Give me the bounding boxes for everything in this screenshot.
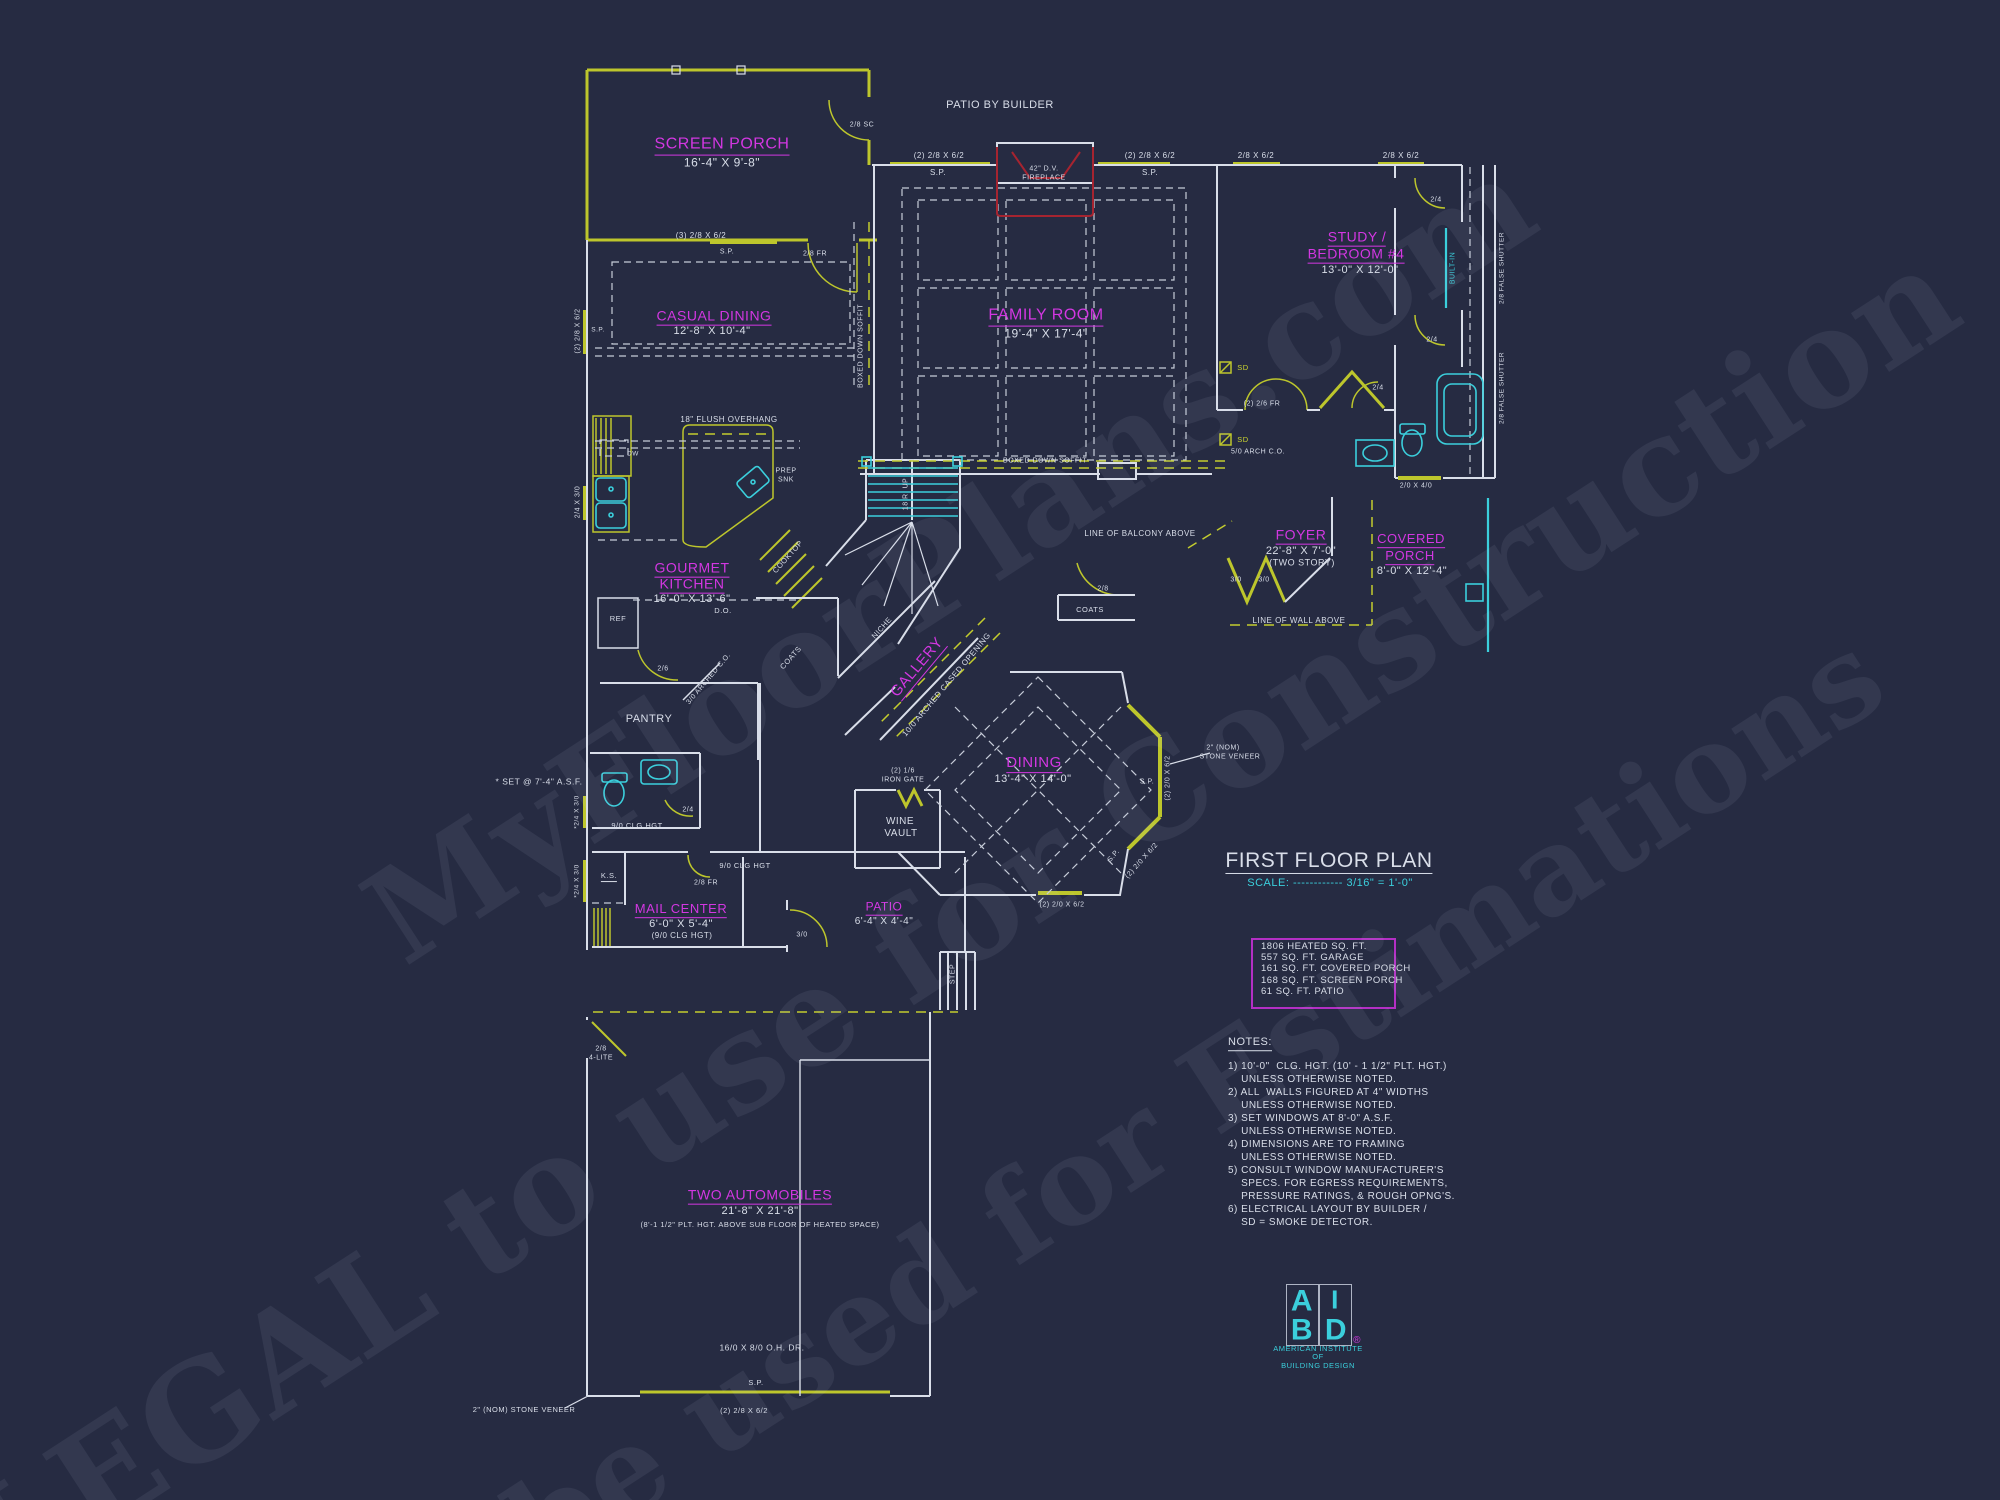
notes-line-1: 1) 10'-0" CLG. HGT. (10' - 1 1/2" PLT. H… <box>1228 1062 1447 1073</box>
label-wine-vault-2: VAULT <box>884 829 917 840</box>
floor-plan-canvas: SCREEN PORCH16'-4" X 9'-8"CASUAL DINING1… <box>0 0 2000 1500</box>
label-mail-center: MAIL CENTER <box>635 902 727 918</box>
logo-letter-i: I <box>1331 1286 1339 1313</box>
notes-line-7: 4) DIMENSIONS ARE TO FRAMING <box>1228 1140 1405 1151</box>
note-soffit-vertical: BOXED DOWN SOFFIT <box>857 304 864 388</box>
notes-line-13: SD = SMOKE DETECTOR. <box>1228 1218 1373 1229</box>
label-screen-porch: SCREEN PORCH <box>655 137 790 156</box>
area-summary-line-4: 168 SQ. FT. SCREEN PORCH <box>1261 976 1403 986</box>
label-refrigerator: REF <box>610 615 627 623</box>
dims-screen-porch: 16'-4" X 9'-8" <box>684 157 760 170</box>
label-foyer: FOYER <box>1276 528 1327 545</box>
door-screen-porch: 2/8 SC <box>850 121 874 128</box>
label-prep-sink-1: PREP <box>775 467 796 474</box>
notes-line-4: UNLESS OTHERWISE NOTED. <box>1228 1101 1396 1112</box>
label-garage: TWO AUTOMOBILES <box>688 1188 832 1205</box>
window-casual-dining: (3) 2/8 X 6/2 <box>676 232 727 240</box>
logo-letter-b: B <box>1291 1314 1313 1346</box>
window-study-left: 2/8 X 6/2 <box>1238 152 1275 160</box>
logo-caption-2: OF <box>1312 1353 1323 1361</box>
note-false-shutter-2: 2/8 FALSE SHUTTER <box>1500 352 1507 424</box>
dims-garage: 21'-8" X 21'-8" <box>722 1206 799 1218</box>
label-wine-vault-1: WINE <box>886 817 914 828</box>
notes-line-12: 6) ELECTRICAL LAYOUT BY BUILDER / <box>1228 1205 1427 1216</box>
notes-heading: NOTES: <box>1228 1037 1272 1051</box>
note-patio-by-builder: PATIO BY BUILDER <box>946 100 1054 112</box>
label-dishwasher: DW <box>627 452 639 459</box>
window-study-right: 2/8 X 6/2 <box>1383 152 1420 160</box>
window-family-left-sp: S.P. <box>930 169 946 177</box>
logo-caption-3: BUILDING DESIGN <box>1281 1362 1355 1370</box>
notes-line-9: 5) CONSULT WINDOW MANUFACTURER'S <box>1228 1166 1444 1177</box>
label-prep-sink-2: SNK <box>778 476 794 483</box>
window-left-1: (2) 2/8 X 6/2 <box>574 308 581 353</box>
area-summary-line-5: 61 SQ. FT. PATIO <box>1261 987 1344 997</box>
window-left-1-sp: S.P. <box>591 328 604 335</box>
door-coats: 2/8 <box>1097 585 1108 592</box>
door-hall-bath: 2/4 <box>1372 384 1383 391</box>
area-summary-line-1: 1806 HEATED SQ. FT. <box>1261 942 1367 952</box>
area-summary-line-2: 557 SQ. FT. GARAGE <box>1261 953 1364 963</box>
note-clg-hgt-2: 9/0 CLG HGT <box>719 862 770 870</box>
dims-casual-dining: 12'-8" X 10'-4" <box>674 326 751 338</box>
notes-line-8: UNLESS OTHERWISE NOTED. <box>1228 1153 1396 1164</box>
note-mail-clg: (9/0 CLG HGT) <box>652 932 713 940</box>
notes-line-3: 2) ALL WALLS FIGURED AT 4" WIDTHS <box>1228 1088 1429 1099</box>
label-family-room: FAMILY ROOM <box>988 308 1103 327</box>
page-title: FIRST FLOOR PLAN <box>1225 850 1432 874</box>
label-coats-foyer: COATS <box>1076 606 1104 614</box>
dims-mail-center: 6'-0" X 5'-4" <box>649 919 713 931</box>
notes-line-10: SPECS. FOR EGRESS REQUIREMENTS, <box>1228 1179 1448 1190</box>
note-stone-veneer-2: 2" (NOM) STONE VENEER <box>473 1406 576 1414</box>
door-iron-gate-2: IRON GATE <box>882 776 924 783</box>
page-scale: SCALE: ------------ 3/16" = 1'-0" <box>1247 878 1412 890</box>
door-iron-gate-1: (2) 1/6 <box>891 767 915 774</box>
window-family-right: (2) 2/8 X 6/2 <box>1125 152 1176 160</box>
note-flush-overhang: 18" FLUSH OVERHANG <box>680 416 777 424</box>
door-casual-dining: 2/8 FR <box>803 250 827 257</box>
notes-line-5: 3) SET WINDOWS AT 8'-0" A.S.F. <box>1228 1114 1393 1125</box>
logo-letter-a: A <box>1291 1285 1313 1317</box>
label-kitchen-2: KITCHEN <box>660 577 725 594</box>
note-foyer-two-story: (TWO STORY) <box>1269 558 1335 567</box>
dims-kitchen: 16'-0" X 13'-6" <box>654 594 731 606</box>
door-foyer-right: 3/0 <box>1258 576 1269 583</box>
note-garage-plt: (8'-1 1/2" PLT. HGT. ABOVE SUB FLOOR OF … <box>641 1221 880 1229</box>
notes-line-11: PRESSURE RATINGS, & ROUGH OPNG'S. <box>1228 1192 1455 1203</box>
window-family-right-sp: S.P. <box>1142 169 1158 177</box>
window-left-2: 2/4 X 3/0 <box>574 486 581 519</box>
dims-family-room: 19'-4" X 17'-4" <box>1004 328 1087 341</box>
dims-foyer: 22'-8" X 7'-0" <box>1266 546 1336 558</box>
door-garage-lite-1: 2/8 <box>595 1045 606 1052</box>
label-fireplace-1: 42" D.V. <box>1029 165 1058 172</box>
door-foyer-left: 3/0 <box>1230 576 1241 583</box>
logo-letter-d: D <box>1325 1314 1347 1346</box>
window-family-left: (2) 2/8 X 6/2 <box>914 152 965 160</box>
notes-line-6: UNLESS OTHERWISE NOTED. <box>1228 1127 1396 1138</box>
notes-line-2: UNLESS OTHERWISE NOTED. <box>1228 1075 1396 1086</box>
label-fireplace-2: FIREPLACE <box>1022 174 1065 181</box>
label-casual-dining: CASUAL DINING <box>657 309 772 326</box>
door-mail-fr: 2/8 FR <box>694 879 718 886</box>
window-casual-dining-sp: S.P. <box>720 248 734 255</box>
area-summary-line-3: 161 SQ. FT. COVERED PORCH <box>1261 964 1411 974</box>
window-bath: 2/0 X 4/0 <box>1400 482 1433 489</box>
